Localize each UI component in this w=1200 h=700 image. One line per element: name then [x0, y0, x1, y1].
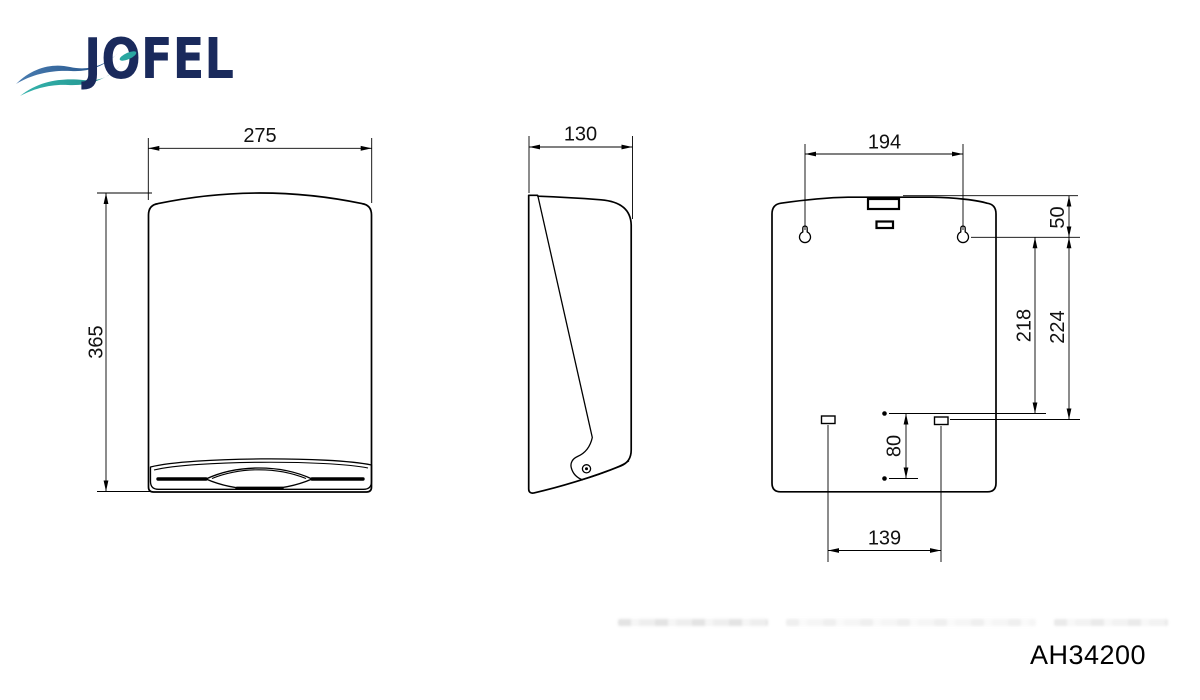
- front-view: 275 365: [86, 125, 372, 492]
- dimension-holes-to-pin: 218: [889, 237, 1046, 413]
- locating-pin-upper: [882, 411, 887, 416]
- dimension-label-pin-spacing: 80: [884, 435, 906, 457]
- locating-pin-lower: [882, 476, 887, 481]
- front-towel-tray: [151, 459, 372, 489]
- dimension-hole-spacing: 194: [805, 132, 963, 231]
- dimension-top-to-holes: 50: [903, 196, 1080, 238]
- technical-drawing: 275 365 130: [0, 0, 1200, 700]
- towel-slot-lens: [206, 468, 312, 489]
- towel-slot-lens-inner-top: [212, 470, 306, 479]
- dimension-pin-spacing: 80: [884, 414, 919, 479]
- dimension-label-holes-to-pin: 218: [1014, 309, 1036, 342]
- mounting-slot-left: [822, 416, 836, 424]
- front-tray-lip: [154, 462, 368, 470]
- side-view: 130: [529, 124, 633, 494]
- front-body-outline: [149, 193, 372, 492]
- side-body-outline: [529, 195, 632, 493]
- dimension-label-hole-spacing: 194: [868, 132, 901, 154]
- dimension-label-front-height: 365: [86, 325, 108, 358]
- dimension-label-holes-to-slot: 224: [1047, 310, 1069, 343]
- back-latch-tab: [868, 199, 899, 209]
- back-latch-slot: [877, 222, 894, 229]
- mounting-slot-right: [935, 417, 949, 425]
- dimension-side-depth: 130: [529, 124, 633, 220]
- dimension-front-width: 275: [148, 125, 371, 203]
- dimension-label-top-to-holes: 50: [1047, 206, 1069, 228]
- dimension-label-slot-spacing: 139: [868, 528, 901, 550]
- dimension-front-height: 365: [86, 193, 153, 492]
- model-code: AH34200: [1018, 640, 1158, 671]
- back-view: 194 50 218 224 80 139: [772, 132, 1080, 563]
- dimension-label-side-depth: 130: [564, 124, 597, 146]
- side-screw-center: [585, 467, 588, 470]
- dimension-label-front-width: 275: [243, 125, 276, 147]
- side-cover-seam: [538, 197, 592, 480]
